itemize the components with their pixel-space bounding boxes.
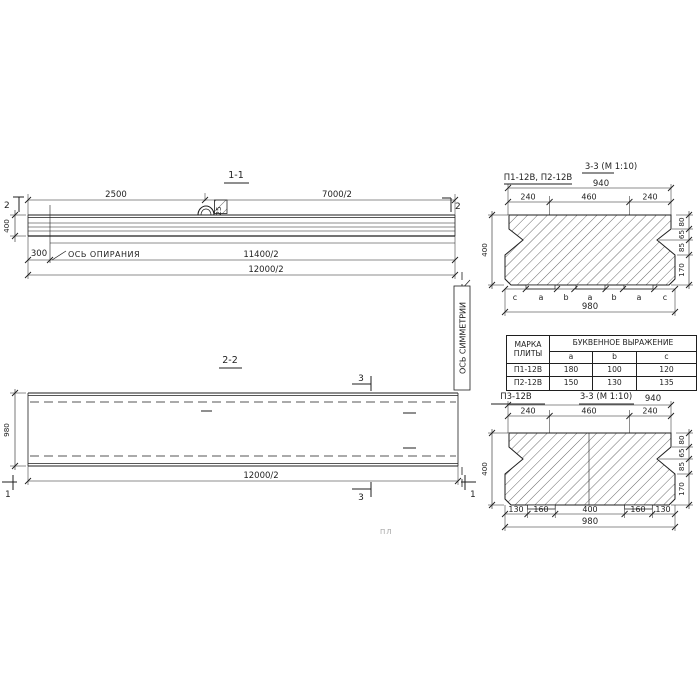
table-row: П1-12В 180 100 120 [507, 364, 697, 377]
cut-marker-3-top-label: 3 [358, 374, 364, 384]
cross-section-bottom-label: П3-12В [500, 392, 532, 402]
dim-460-b: 460 [581, 407, 596, 416]
dim-980-label: 980 [2, 423, 11, 437]
dim-980-left: 980 [2, 389, 26, 470]
cut-marker-2-left-label: 2 [4, 201, 10, 211]
section-2-2: 2-2 980 12000/2 [2, 272, 476, 503]
dim-12000-label: 12000/2 [248, 265, 283, 275]
dim-12000-plan: 12000/2 [25, 466, 461, 485]
anchor-plate-label: 25 [214, 206, 223, 215]
letter-values-table: МАРКА ПЛИТЫ БУКВЕННОЕ ВЫРАЖЕНИЕ a b c П1… [506, 335, 697, 391]
dim-940-bottom-label: 940 [645, 394, 661, 404]
support-axis-leader [52, 251, 66, 260]
cut-marker-1-left-label: 1 [5, 490, 11, 500]
cross-section-bottom: П3-12В 3-3 (М 1:10) 940 240 460 240 [480, 392, 693, 531]
dim-80-bottom: 80 [677, 435, 686, 445]
table-header-span: БУКВЕННОЕ ВЫРАЖЕНИЕ [550, 336, 697, 352]
dim-400-top-label: 400 [480, 243, 489, 257]
cut-marker-3-bottom: 3 [352, 482, 371, 503]
section-2-2-title: 2-2 [222, 355, 238, 366]
dim-980-bottom-label: 980 [582, 517, 598, 527]
dim-400-bottom: 400 [480, 429, 508, 509]
letter-b1: b [563, 293, 568, 302]
table-col-c: c [637, 352, 697, 364]
cross-section-top: П1-12В, П2-12В 3-3 (М 1:10) 940 240 460 … [480, 162, 693, 316]
table-header-mark-line2: ПЛИТЫ [507, 350, 549, 358]
support-axis: ОСЬ ОПИРАНИЯ [50, 205, 140, 263]
dim-240-right-b: 240 [642, 407, 657, 416]
dim-11400-label: 11400/2 [243, 250, 278, 260]
dim-top: 2500 7000/2 [25, 190, 458, 215]
dim-170-top: 170 [677, 263, 686, 277]
section-1-1-title: 1-1 [228, 170, 244, 181]
bearing-pads-top [526, 285, 653, 289]
dim-400-bottom-label: 400 [480, 462, 489, 476]
dim-240-right: 240 [642, 193, 657, 202]
dim-height-400: 400 [2, 210, 26, 242]
letter-c1: c [513, 293, 517, 302]
dim-7000-2: 7000/2 [322, 190, 352, 200]
letter-c2: c [663, 293, 667, 302]
dim-130-r: 130 [655, 505, 670, 514]
dim-170-bottom: 170 [677, 482, 686, 496]
dim-12000-plan-label: 12000/2 [243, 471, 278, 481]
dim-940-label: 940 [593, 179, 609, 189]
letter-a3: a [637, 293, 642, 302]
dim-65-bottom: 65 [677, 448, 686, 457]
dim-400-top: 400 [480, 211, 508, 289]
table-col-a: a [550, 352, 593, 364]
dim-160-r: 160 [630, 505, 645, 514]
table-cell-mark: П1-12В [507, 364, 550, 377]
dim-300: 300 [31, 249, 47, 259]
dim-460: 460 [581, 193, 596, 202]
section-profile-bottom [505, 433, 675, 505]
cross-section-top-title: 3-3 (М 1:10) [585, 162, 637, 172]
cut-marker-2-right-label: 2 [455, 202, 461, 212]
beam-outline [28, 215, 455, 243]
dim-2500: 2500 [105, 190, 127, 200]
cut-marker-1-right-label: 1 [470, 490, 476, 500]
cross-section-bottom-title: 3-3 (М 1:10) [580, 392, 632, 402]
table-cell-b: 100 [593, 364, 637, 377]
table-row: П2-12В 150 130 135 [507, 377, 697, 391]
table-cell-b: 130 [593, 377, 637, 391]
letter-a1: a [539, 293, 544, 302]
drawing-sheet: 1-1 25 2 2 [0, 0, 700, 700]
table-cell-a: 150 [550, 377, 593, 391]
slab-plan-outline [28, 393, 458, 466]
table-header-mark: МАРКА ПЛИТЫ [507, 336, 550, 364]
support-axis-label: ОСЬ ОПИРАНИЯ [68, 250, 140, 259]
dim-130-l: 130 [508, 505, 523, 514]
dim-980-top-label: 980 [582, 302, 598, 312]
symmetry-axis: ОСЬ СИММЕТРИИ [454, 272, 470, 489]
dim-980-bottom-section: 980 [502, 517, 678, 531]
letter-a2: a [588, 293, 593, 302]
dim-400-label: 400 [2, 219, 11, 233]
table-cell-c: 120 [637, 364, 697, 377]
table-cell-a: 180 [550, 364, 593, 377]
dim-160-l: 160 [533, 505, 548, 514]
symmetry-axis-label: ОСЬ СИММЕТРИИ [459, 302, 468, 374]
dim-12000: 12000/2 [25, 265, 458, 278]
dim-85-top: 85 [677, 243, 686, 252]
section-1-1: 1-1 25 2 2 [2, 170, 461, 279]
cut-marker-1-right: 1 [461, 475, 476, 500]
dim-65-top: 65 [677, 230, 686, 239]
section-profile-top [505, 215, 675, 285]
dim-400-mid: 400 [582, 505, 597, 514]
table-cell-mark: П2-12В [507, 377, 550, 391]
cut-marker-2-left: 2 [4, 197, 24, 212]
cut-marker-3-bottom-label: 3 [358, 493, 364, 503]
cut-marker-1-left: 1 [2, 475, 17, 500]
table-col-b: b [593, 352, 637, 364]
centerline-dashes [201, 411, 416, 448]
letter-b2: b [611, 293, 616, 302]
dim-240-460-240-top: 240 460 240 [505, 193, 674, 216]
dim-80-top: 80 [677, 217, 686, 227]
cross-section-top-label: П1-12В, П2-12В [504, 173, 573, 183]
dim-240-left-b: 240 [520, 407, 535, 416]
dim-85-bottom: 85 [677, 462, 686, 471]
dim-240-460-240-bottom: 240 460 240 [505, 407, 674, 434]
cut-marker-3-top: 3 [352, 374, 371, 391]
faint-print-artifact: ПЛ [380, 528, 393, 536]
table-cell-c: 135 [637, 377, 697, 391]
dim-240-left: 240 [520, 193, 535, 202]
